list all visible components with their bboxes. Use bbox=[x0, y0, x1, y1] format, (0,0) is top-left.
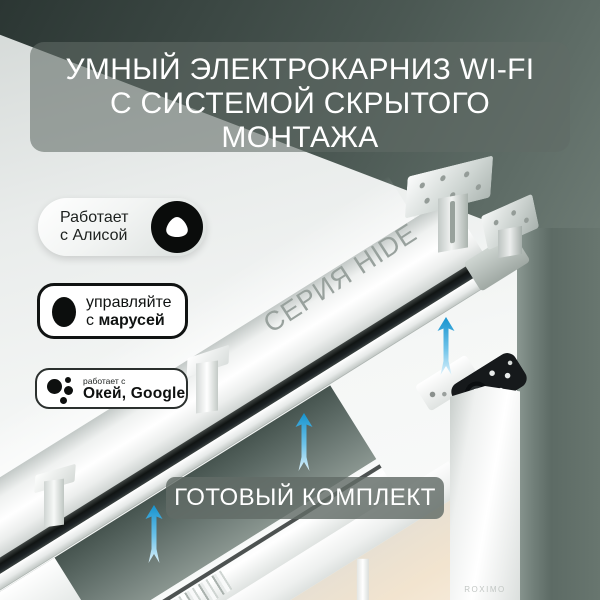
product-image: ROXIMO СЕРИЯ HIDE ГОТОВЫЙ КОМПЛЕКТ УМНЫЙ… bbox=[0, 0, 600, 600]
title-panel: УМНЫЙ ЭЛЕКТРОКАРНИЗ WI-FI С СИСТЕМОЙ СКР… bbox=[30, 42, 570, 152]
badge-marusya-text: управляйте с марусей bbox=[86, 294, 172, 330]
mounting-bracket-leg bbox=[196, 360, 218, 413]
title-line-2: С СИСТЕМОЙ СКРЫТОГО bbox=[30, 87, 570, 121]
google-assistant-icon bbox=[47, 376, 77, 404]
title-line-3: МОНТАЖА bbox=[30, 121, 570, 155]
motor-unit: ROXIMO bbox=[450, 386, 520, 600]
up-arrow-icon bbox=[142, 504, 166, 566]
badge-control-with-marusya: управляйте с марусей bbox=[37, 283, 188, 339]
window-mullion bbox=[357, 559, 369, 600]
alice-icon bbox=[151, 201, 203, 253]
up-arrow-icon bbox=[292, 412, 316, 474]
title-line-1: УМНЫЙ ЭЛЕКТРОКАРНИЗ WI-FI bbox=[30, 53, 570, 87]
wall-right-band bbox=[517, 228, 600, 600]
brand-logo-text: ROXIMO bbox=[450, 585, 520, 594]
mounting-bracket-leg bbox=[438, 193, 468, 252]
badge-works-with-alice: Работает с Алисой bbox=[38, 198, 206, 256]
up-arrow-icon bbox=[434, 316, 458, 378]
marusya-icon bbox=[52, 297, 76, 327]
badge-alice-text: Работает с Алисой bbox=[60, 209, 129, 245]
mounting-bracket-leg bbox=[498, 226, 522, 258]
badge-google-title: Окей, Google bbox=[83, 385, 185, 403]
alice-blob-glyph bbox=[164, 214, 190, 240]
kit-label: ГОТОВЫЙ КОМПЛЕКТ bbox=[166, 477, 444, 519]
badge-works-with-google: работает с Окей, Google bbox=[35, 368, 188, 409]
bracket-slot bbox=[450, 201, 455, 244]
mounting-bracket-leg bbox=[44, 479, 64, 528]
